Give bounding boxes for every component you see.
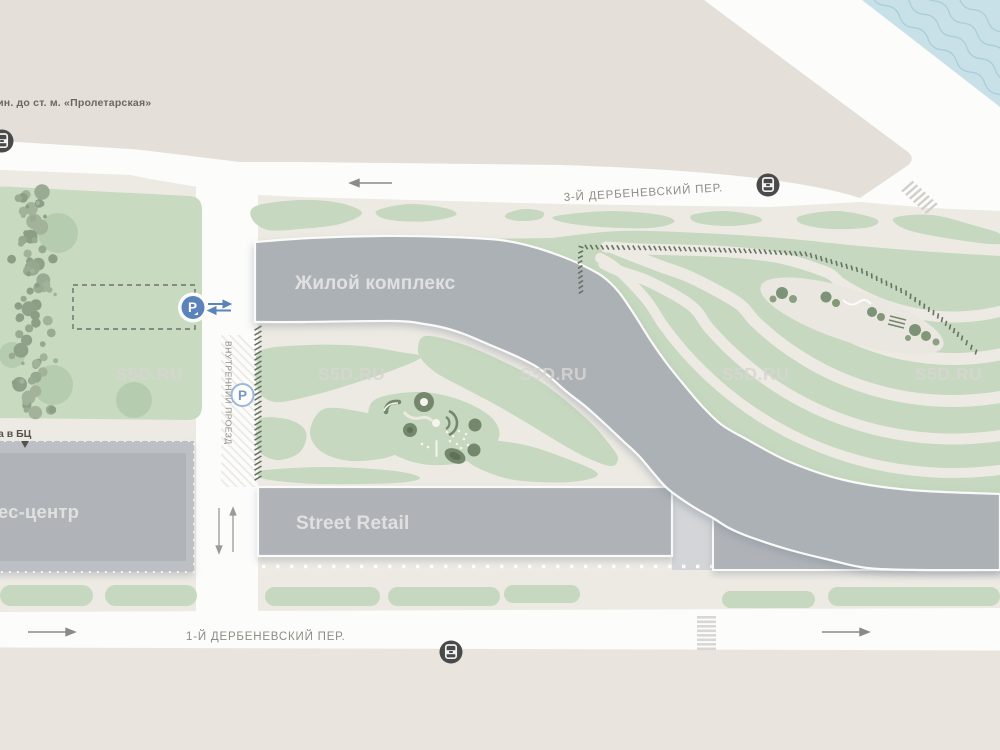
svg-text:1-Й ДЕРБЕНЕВСКИЙ ПЕР.: 1-Й ДЕРБЕНЕВСКИЙ ПЕР.: [186, 630, 345, 643]
svg-text:S5D.RU: S5D.RU: [318, 364, 385, 384]
svg-text:P: P: [238, 388, 247, 403]
svg-text:S5D.RU: S5D.RU: [116, 364, 183, 384]
svg-text:5 мин. до ст. м. «Пролетарская: 5 мин. до ст. м. «Пролетарская»: [0, 97, 151, 109]
svg-text:S5D.RU: S5D.RU: [915, 364, 982, 384]
svg-text:Street Retail: Street Retail: [296, 513, 409, 534]
svg-text:P: P: [188, 300, 197, 315]
svg-text:Бизнес-центр: Бизнес-центр: [0, 501, 79, 522]
svg-text:Жилой комплекс: Жилой комплекс: [294, 273, 456, 294]
svg-text:S5D.RU: S5D.RU: [520, 364, 587, 384]
svg-text:S5D.RU: S5D.RU: [722, 364, 789, 384]
svg-text:а в БЦ: а в БЦ: [0, 428, 32, 440]
